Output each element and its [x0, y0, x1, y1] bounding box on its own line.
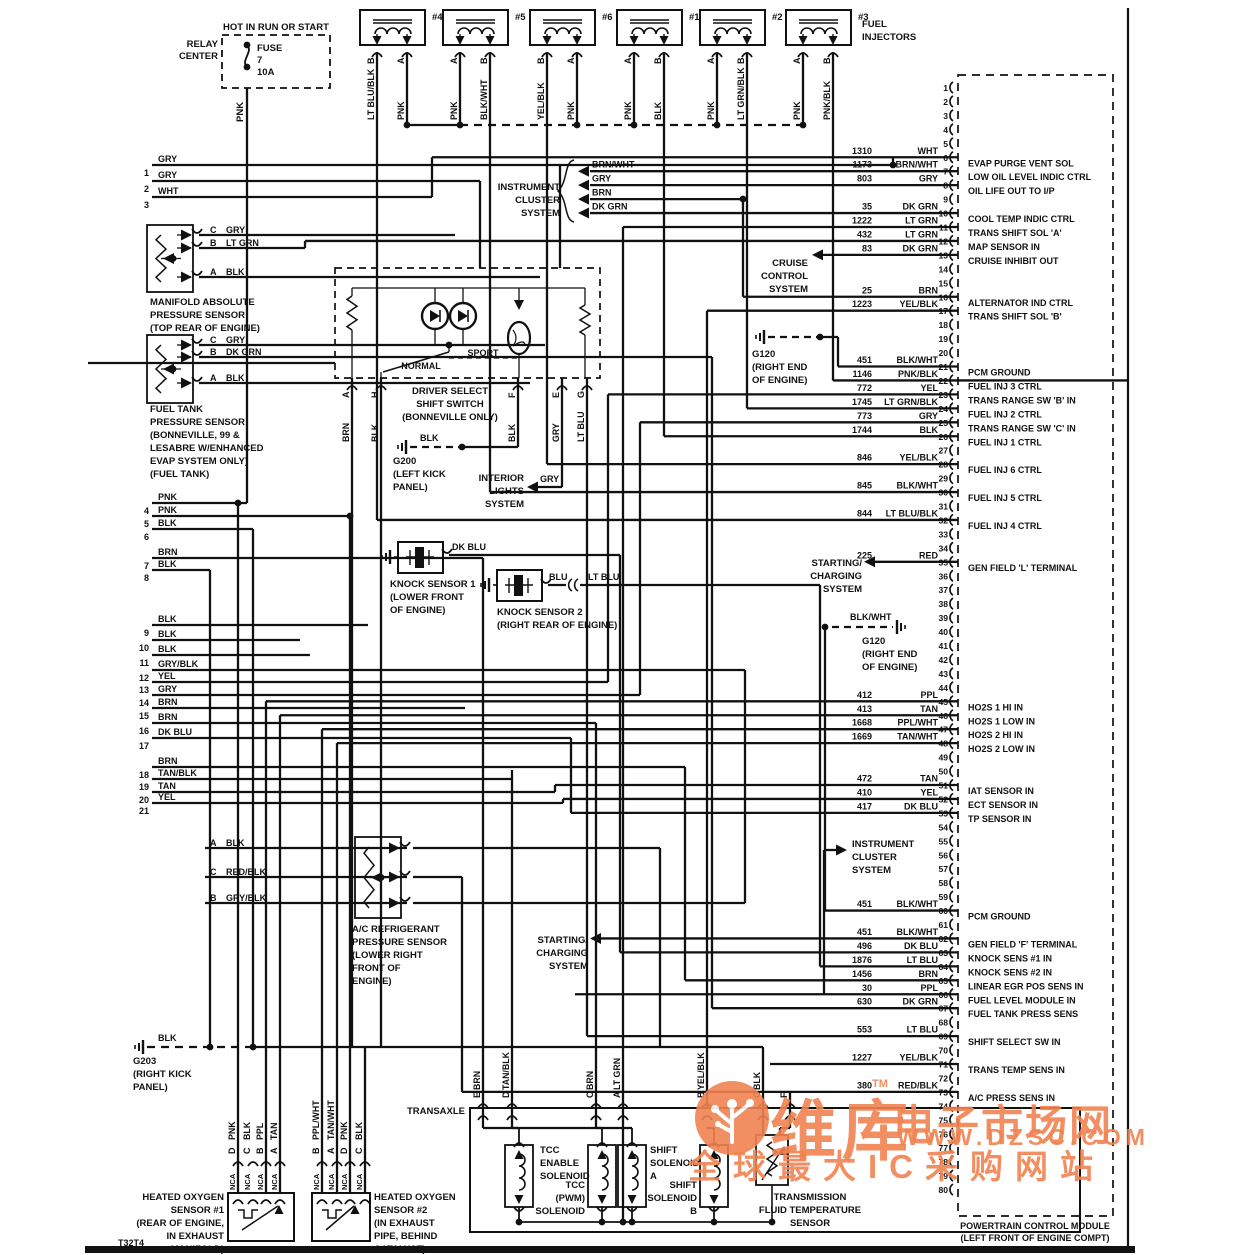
svg-text:A: A — [210, 267, 217, 277]
svg-text:846: 846 — [857, 453, 872, 463]
svg-text:PRESSURE SENSOR: PRESSURE SENSOR — [352, 937, 447, 948]
svg-text:PNK/BLK: PNK/BLK — [822, 80, 832, 120]
svg-text:BRN: BRN — [919, 969, 939, 979]
svg-text:TAN: TAN — [920, 704, 938, 714]
svg-text:INJECTORS: INJECTORS — [862, 32, 916, 43]
svg-text:TAN: TAN — [158, 781, 176, 791]
svg-text:FRONT OF: FRONT OF — [352, 963, 401, 974]
svg-text:YEL: YEL — [158, 792, 176, 802]
svg-text:OF ENGINE): OF ENGINE) — [390, 605, 445, 616]
svg-text:NCA: NCA — [340, 1173, 349, 1190]
svg-text:B: B — [311, 1147, 321, 1154]
svg-text:1223: 1223 — [852, 299, 872, 309]
svg-text:(BONNEVILLE, 99 &: (BONNEVILLE, 99 & — [150, 430, 240, 441]
svg-text:BLK: BLK — [370, 423, 380, 442]
svg-text:BRN: BRN — [341, 423, 351, 442]
svg-text:21: 21 — [139, 806, 149, 816]
svg-text:9: 9 — [144, 628, 149, 638]
svg-text:16: 16 — [139, 726, 149, 736]
svg-text:PNK: PNK — [623, 101, 633, 120]
svg-text:INSTRUMENT: INSTRUMENT — [852, 839, 914, 850]
svg-text:55: 55 — [938, 836, 948, 846]
svg-text:6: 6 — [144, 532, 149, 542]
svg-text:TAN/BLK: TAN/BLK — [158, 768, 197, 778]
svg-text:#5: #5 — [515, 12, 526, 23]
wiring-diagram-page: 1234567891011121314151617181920212223242… — [0, 0, 1242, 1255]
svg-text:HO2S 1 HI IN: HO2S 1 HI IN — [968, 702, 1023, 712]
svg-text:(LOWER RIGHT: (LOWER RIGHT — [352, 950, 423, 961]
svg-text:FUEL INJ 2 CTRL: FUEL INJ 2 CTRL — [968, 409, 1042, 419]
svg-text:LOW OIL LEVEL INDIC CTRL: LOW OIL LEVEL INDIC CTRL — [968, 172, 1092, 182]
svg-text:4: 4 — [144, 506, 149, 516]
svg-text:LIGHTS: LIGHTS — [489, 486, 524, 497]
dzsc-watermark-logo-icon — [694, 1080, 770, 1156]
svg-text:BRN: BRN — [158, 712, 178, 722]
svg-text:A: A — [623, 57, 633, 64]
svg-text:PNK: PNK — [339, 1121, 349, 1140]
svg-text:YEL/BLK: YEL/BLK — [899, 299, 938, 309]
svg-text:EVAP SYSTEM ONLY): EVAP SYSTEM ONLY) — [150, 456, 248, 467]
svg-text:GRY: GRY — [919, 174, 938, 184]
svg-text:C: C — [210, 335, 217, 345]
svg-text:FUEL: FUEL — [862, 19, 887, 30]
svg-text:HO2S 1 LOW IN: HO2S 1 LOW IN — [968, 716, 1035, 726]
svg-text:A/C PRESS SENS IN: A/C PRESS SENS IN — [968, 1093, 1055, 1103]
svg-text:CLUSTER: CLUSTER — [852, 852, 897, 863]
svg-text:F: F — [507, 392, 517, 398]
svg-text:29: 29 — [938, 474, 948, 484]
svg-text:BLK: BLK — [158, 518, 177, 528]
svg-text:HOT IN RUN OR START: HOT IN RUN OR START — [223, 22, 329, 33]
svg-text:#1: #1 — [689, 12, 700, 23]
svg-text:POWERTRAIN CONTROL MODULE: POWERTRAIN CONTROL MODULE — [960, 1221, 1110, 1231]
svg-text:NCA: NCA — [355, 1173, 364, 1190]
svg-text:BLK: BLK — [226, 267, 245, 277]
svg-text:SHIFT: SHIFT — [670, 1180, 698, 1191]
svg-text:BRN: BRN — [919, 285, 939, 295]
svg-text:PRESSURE SENSOR: PRESSURE SENSOR — [150, 310, 245, 321]
svg-text:D: D — [227, 1147, 237, 1154]
svg-text:A: A — [612, 1091, 622, 1098]
diagram-code: T32T4 — [118, 1238, 144, 1248]
svg-text:ALTERNATOR IND CTRL: ALTERNATOR IND CTRL — [968, 298, 1073, 308]
svg-text:NCA: NCA — [327, 1173, 336, 1190]
svg-text:BLK: BLK — [242, 1121, 252, 1140]
svg-text:1146: 1146 — [852, 369, 872, 379]
svg-text:50: 50 — [938, 767, 948, 777]
svg-text:(PWM): (PWM) — [555, 1193, 585, 1204]
svg-text:STARTING/: STARTING/ — [538, 935, 589, 946]
svg-text:SYSTEM: SYSTEM — [823, 584, 862, 595]
svg-text:20: 20 — [139, 795, 149, 805]
svg-text:B: B — [479, 57, 489, 64]
svg-text:773: 773 — [857, 411, 872, 421]
svg-text:1222: 1222 — [852, 216, 872, 226]
wiring-diagram-canvas: 1234567891011121314151617181920212223242… — [0, 0, 1242, 1255]
svg-text:78: 78 — [938, 1157, 948, 1167]
svg-text:SENSOR #1: SENSOR #1 — [171, 1205, 225, 1216]
svg-text:1: 1 — [144, 168, 149, 178]
svg-text:5: 5 — [943, 139, 948, 149]
svg-text:(LEFT FRONT OF ENGINE COMPT): (LEFT FRONT OF ENGINE COMPT) — [961, 1233, 1110, 1243]
svg-text:DK BLU: DK BLU — [904, 801, 938, 811]
svg-text:79: 79 — [938, 1171, 948, 1181]
svg-text:2: 2 — [943, 97, 948, 107]
svg-text:SENSOR: SENSOR — [790, 1218, 830, 1229]
svg-text:B: B — [366, 57, 376, 64]
svg-text:PCM GROUND: PCM GROUND — [968, 368, 1031, 378]
svg-text:EVAP PURGE VENT SOL: EVAP PURGE VENT SOL — [968, 158, 1074, 168]
svg-text:TAN: TAN — [920, 774, 938, 784]
svg-text:GRY: GRY — [158, 684, 177, 694]
svg-text:CRUISE INHIBIT OUT: CRUISE INHIBIT OUT — [968, 256, 1059, 266]
svg-text:B: B — [210, 347, 217, 357]
svg-text:TAN/BLK: TAN/BLK — [501, 1051, 511, 1090]
svg-text:380: 380 — [857, 1080, 872, 1090]
svg-text:D: D — [501, 1091, 511, 1098]
svg-text:FUEL INJ 3 CTRL: FUEL INJ 3 CTRL — [968, 381, 1042, 391]
svg-text:18: 18 — [938, 320, 948, 330]
svg-text:A: A — [210, 373, 217, 383]
svg-text:PPL/WHT: PPL/WHT — [311, 1100, 321, 1140]
svg-text:9: 9 — [943, 195, 948, 205]
svg-text:C: C — [210, 225, 217, 235]
svg-text:KNOCK SENSOR 1: KNOCK SENSOR 1 — [390, 579, 476, 590]
svg-text:NCA: NCA — [312, 1173, 321, 1190]
svg-text:GRY: GRY — [592, 174, 611, 184]
svg-text:LT GRN: LT GRN — [905, 229, 938, 239]
svg-text:B: B — [653, 57, 663, 64]
svg-text:CONTROL: CONTROL — [761, 271, 808, 282]
svg-text:SPORT: SPORT — [467, 348, 499, 358]
svg-text:(BONNEVILLE ONLY): (BONNEVILLE ONLY) — [402, 412, 498, 423]
svg-text:A: A — [706, 57, 716, 64]
svg-text:BLK: BLK — [226, 838, 245, 848]
svg-text:LT BLU/BLK: LT BLU/BLK — [366, 68, 376, 120]
svg-text:BLK/WHT: BLK/WHT — [850, 612, 892, 622]
svg-text:BRN: BRN — [158, 547, 178, 557]
svg-text:TCC: TCC — [565, 1180, 585, 1191]
svg-text:57: 57 — [938, 864, 948, 874]
svg-text:PNK: PNK — [792, 101, 802, 120]
svg-text:PANEL): PANEL) — [133, 1082, 168, 1093]
svg-text:1744: 1744 — [852, 425, 872, 435]
svg-text:PNK: PNK — [566, 101, 576, 120]
svg-text:A/C REFRIGERANT: A/C REFRIGERANT — [352, 924, 440, 935]
svg-text:59: 59 — [938, 892, 948, 902]
svg-text:BRN/WHT: BRN/WHT — [592, 160, 635, 170]
svg-text:FUEL INJ 4 CTRL: FUEL INJ 4 CTRL — [968, 521, 1042, 531]
svg-text:(LOWER FRONT: (LOWER FRONT — [390, 592, 464, 603]
svg-text:F: F — [779, 1092, 789, 1098]
svg-text:LESABRE W/ENHANCED: LESABRE W/ENHANCED — [150, 443, 264, 454]
svg-text:1876: 1876 — [852, 955, 872, 965]
svg-text:E: E — [551, 392, 561, 398]
svg-text:ENGINE): ENGINE) — [352, 976, 392, 987]
svg-text:SENSOR #2: SENSOR #2 — [374, 1205, 427, 1216]
svg-text:BLK: BLK — [507, 423, 517, 442]
svg-text:TAN: TAN — [269, 1123, 279, 1140]
svg-text:PNK: PNK — [158, 492, 178, 502]
svg-text:451: 451 — [857, 927, 872, 937]
svg-text:MAP SENSOR IN: MAP SENSOR IN — [968, 242, 1040, 252]
svg-text:NCA: NCA — [270, 1173, 279, 1190]
svg-text:BLK/WHT: BLK/WHT — [897, 355, 939, 365]
svg-text:BLK: BLK — [226, 373, 245, 383]
svg-text:14: 14 — [938, 264, 948, 274]
svg-text:BLK: BLK — [158, 559, 177, 569]
svg-text:TRANSMISSION: TRANSMISSION — [774, 1192, 847, 1203]
svg-text:19: 19 — [938, 334, 948, 344]
svg-text:553: 553 — [857, 1025, 872, 1035]
svg-text:58: 58 — [938, 878, 948, 888]
svg-text:G120: G120 — [752, 349, 775, 360]
svg-text:DK BLU: DK BLU — [158, 727, 192, 737]
svg-text:61: 61 — [938, 920, 948, 930]
svg-text:72: 72 — [938, 1073, 948, 1083]
svg-text:A: A — [650, 1171, 657, 1182]
svg-text:C: C — [210, 867, 217, 877]
svg-text:49: 49 — [938, 753, 948, 763]
svg-text:42: 42 — [938, 655, 948, 665]
svg-text:D: D — [339, 1147, 349, 1154]
svg-text:LT GRN: LT GRN — [226, 238, 259, 248]
svg-text:PNK/BLK: PNK/BLK — [898, 369, 938, 379]
svg-text:PPL: PPL — [920, 983, 938, 993]
svg-text:DK BLU: DK BLU — [452, 542, 486, 552]
svg-text:76: 76 — [938, 1129, 948, 1139]
svg-text:BLK/WHT: BLK/WHT — [897, 481, 939, 491]
svg-text:SOLENOID: SOLENOID — [650, 1158, 700, 1169]
svg-text:54: 54 — [938, 822, 948, 832]
svg-text:15: 15 — [139, 711, 149, 721]
svg-text:35: 35 — [862, 202, 872, 212]
svg-text:(LEFT KICK: (LEFT KICK — [393, 469, 446, 480]
svg-text:NCA: NCA — [256, 1173, 265, 1190]
svg-text:G120: G120 — [862, 636, 885, 647]
svg-text:630: 630 — [857, 997, 872, 1007]
svg-text:412: 412 — [857, 690, 872, 700]
svg-text:(TOP REAR OF ENGINE): (TOP REAR OF ENGINE) — [150, 323, 260, 334]
svg-text:PNK: PNK — [396, 101, 406, 120]
svg-text:BLK: BLK — [158, 614, 177, 624]
svg-text:41: 41 — [938, 641, 948, 651]
svg-text:844: 844 — [857, 508, 872, 518]
svg-text:#4: #4 — [432, 12, 443, 23]
svg-text:7: 7 — [144, 561, 149, 571]
svg-text:SYSTEM: SYSTEM — [521, 208, 560, 219]
svg-text:1669: 1669 — [852, 732, 872, 742]
svg-text:845: 845 — [857, 481, 872, 491]
svg-text:BLK: BLK — [653, 101, 663, 120]
svg-text:INTERIOR: INTERIOR — [479, 473, 525, 484]
svg-text:BLK: BLK — [158, 1033, 177, 1043]
svg-text:E: E — [472, 1092, 482, 1098]
svg-text:DK BLU: DK BLU — [904, 941, 938, 951]
svg-text:43: 43 — [938, 669, 948, 679]
svg-text:B: B — [690, 1206, 697, 1217]
svg-text:LT BLU: LT BLU — [588, 572, 619, 582]
svg-text:(IN EXHAUST: (IN EXHAUST — [374, 1218, 435, 1229]
svg-text:12: 12 — [139, 673, 149, 683]
svg-text:TP SENSOR IN: TP SENSOR IN — [968, 814, 1031, 824]
svg-text:YEL/BLK: YEL/BLK — [536, 82, 546, 120]
svg-text:FUEL LEVEL MODULE IN: FUEL LEVEL MODULE IN — [968, 995, 1076, 1005]
svg-text:SYSTEM: SYSTEM — [549, 961, 588, 972]
svg-text:BLK: BLK — [420, 433, 439, 443]
svg-text:SOLENOID: SOLENOID — [535, 1206, 585, 1217]
driver-select-shift-switch: NORMALSPORTABRNHBLKFBLKEGRYGLT BLUDRIVER… — [335, 268, 600, 442]
svg-text:CHARGING: CHARGING — [810, 571, 862, 582]
svg-text:27: 27 — [938, 446, 948, 456]
svg-text:NCA: NCA — [228, 1173, 237, 1190]
svg-text:40: 40 — [938, 627, 948, 637]
svg-text:C: C — [354, 1147, 364, 1154]
pcm-connector: 1234567891011121314151617181920212223242… — [266, 75, 1113, 1243]
svg-text:4: 4 — [943, 125, 948, 135]
svg-text:PPL: PPL — [255, 1122, 265, 1140]
svg-text:TRANS SHIFT SOL 'B': TRANS SHIFT SOL 'B' — [968, 312, 1062, 322]
svg-text:LT BLU: LT BLU — [907, 1025, 938, 1035]
svg-text:CENTER: CENTER — [179, 51, 218, 62]
svg-text:A: A — [792, 57, 802, 64]
svg-text:A: A — [210, 838, 217, 848]
svg-text:OF ENGINE): OF ENGINE) — [862, 662, 917, 673]
svg-text:RELAY: RELAY — [187, 39, 219, 50]
svg-text:C: C — [585, 1091, 595, 1098]
svg-text:RED: RED — [919, 550, 939, 560]
svg-text:DRIVER SELECT: DRIVER SELECT — [412, 386, 488, 397]
svg-text:RED/BLK: RED/BLK — [226, 867, 266, 877]
svg-text:TCC: TCC — [540, 1145, 560, 1156]
svg-text:PNK: PNK — [706, 101, 716, 120]
svg-text:8: 8 — [144, 573, 149, 583]
svg-text:SYSTEM: SYSTEM — [769, 284, 808, 295]
svg-text:BLK/WHT: BLK/WHT — [897, 899, 939, 909]
svg-text:10A: 10A — [257, 67, 275, 78]
svg-text:83: 83 — [862, 243, 872, 253]
svg-text:432: 432 — [857, 229, 872, 239]
svg-text:70: 70 — [938, 1046, 948, 1056]
svg-text:803: 803 — [857, 174, 872, 184]
svg-text:GRY: GRY — [158, 170, 177, 180]
svg-text:COOL TEMP INDIC CTRL: COOL TEMP INDIC CTRL — [968, 214, 1075, 224]
svg-text:BLK: BLK — [920, 425, 939, 435]
svg-text:BRN: BRN — [472, 1071, 482, 1090]
svg-text:417: 417 — [857, 801, 872, 811]
svg-text:HEATED OXYGEN: HEATED OXYGEN — [142, 1192, 224, 1203]
svg-text:OIL LIFE OUT TO I/P: OIL LIFE OUT TO I/P — [968, 186, 1055, 196]
svg-text:TRANS RANGE SW 'C' IN: TRANS RANGE SW 'C' IN — [968, 423, 1076, 433]
svg-text:BRN: BRN — [158, 697, 178, 707]
svg-text:13: 13 — [139, 685, 149, 695]
svg-text:451: 451 — [857, 899, 872, 909]
svg-text:3: 3 — [144, 200, 149, 210]
svg-text:PANEL): PANEL) — [393, 482, 428, 493]
svg-text:DK GRN: DK GRN — [592, 202, 628, 212]
svg-text:NCA: NCA — [243, 1173, 252, 1190]
svg-text:MANIFOLD ABSOLUTE: MANIFOLD ABSOLUTE — [150, 297, 255, 308]
svg-text:413: 413 — [857, 704, 872, 714]
svg-text:1227: 1227 — [852, 1053, 872, 1063]
svg-text:A: A — [341, 391, 351, 398]
svg-text:DK GRN: DK GRN — [903, 243, 939, 253]
svg-text:BLK/WHT: BLK/WHT — [479, 79, 489, 120]
svg-text:LT BLU/BLK: LT BLU/BLK — [886, 508, 939, 518]
svg-text:7: 7 — [257, 55, 262, 66]
svg-text:18: 18 — [139, 770, 149, 780]
svg-text:(RIGHT END: (RIGHT END — [752, 362, 808, 373]
svg-text:3: 3 — [943, 111, 948, 121]
svg-text:(RIGHT REAR OF ENGINE): (RIGHT REAR OF ENGINE) — [497, 620, 617, 631]
svg-text:PCM GROUND: PCM GROUND — [968, 912, 1031, 922]
svg-text:19: 19 — [139, 782, 149, 792]
svg-text:CRUISE: CRUISE — [772, 258, 808, 269]
svg-text:G203: G203 — [133, 1056, 156, 1067]
svg-text:SYSTEM: SYSTEM — [485, 499, 524, 510]
svg-text:772: 772 — [857, 383, 872, 393]
svg-text:A: A — [269, 1147, 279, 1154]
svg-text:80: 80 — [938, 1185, 948, 1195]
svg-text:496: 496 — [857, 941, 872, 951]
svg-text:GRY/BLK: GRY/BLK — [158, 659, 199, 669]
svg-text:410: 410 — [857, 787, 872, 797]
svg-text:YEL: YEL — [158, 671, 176, 681]
svg-text:STARTING/: STARTING/ — [812, 558, 863, 569]
svg-text:BRN: BRN — [592, 188, 612, 198]
svg-text:LT BLU: LT BLU — [576, 411, 586, 442]
svg-text:14: 14 — [139, 698, 149, 708]
svg-text:39: 39 — [938, 613, 948, 623]
svg-text:WHT: WHT — [918, 146, 939, 156]
svg-text:GRY: GRY — [540, 474, 559, 484]
svg-text:BRN: BRN — [158, 756, 178, 766]
svg-text:ENABLE: ENABLE — [540, 1158, 579, 1169]
svg-text:YEL/BLK: YEL/BLK — [899, 453, 938, 463]
svg-text:BLK: BLK — [354, 1121, 364, 1140]
svg-text:DK GRN: DK GRN — [903, 997, 939, 1007]
svg-text:FUSE: FUSE — [257, 43, 282, 54]
svg-text:LT BLU: LT BLU — [907, 955, 938, 965]
svg-text:KNOCK SENSOR 2: KNOCK SENSOR 2 — [497, 607, 583, 618]
svg-text:1745: 1745 — [852, 397, 872, 407]
svg-text:ECT SENSOR IN: ECT SENSOR IN — [968, 800, 1038, 810]
svg-text:BLK: BLK — [158, 629, 177, 639]
svg-text:SHIFT SWITCH: SHIFT SWITCH — [416, 399, 484, 410]
svg-text:G200: G200 — [393, 456, 416, 467]
svg-text:FUEL INJ 5 CTRL: FUEL INJ 5 CTRL — [968, 493, 1042, 503]
svg-text:GRY: GRY — [226, 335, 245, 345]
svg-text:WHT: WHT — [158, 186, 179, 196]
svg-text:CHARGING: CHARGING — [536, 948, 588, 959]
svg-text:PIPE, BEHIND: PIPE, BEHIND — [374, 1231, 437, 1242]
svg-text:GEN FIELD 'F' TERMINAL: GEN FIELD 'F' TERMINAL — [968, 939, 1078, 949]
svg-text:1456: 1456 — [852, 969, 872, 979]
svg-text:1310: 1310 — [852, 146, 872, 156]
svg-text:KNOCK SENS #1 IN: KNOCK SENS #1 IN — [968, 953, 1052, 963]
svg-text:PNK: PNK — [227, 1121, 237, 1140]
svg-text:(RIGHT KICK: (RIGHT KICK — [133, 1069, 192, 1080]
svg-text:34: 34 — [938, 543, 948, 553]
svg-text:472: 472 — [857, 774, 872, 784]
svg-text:TAN/WHT: TAN/WHT — [897, 732, 938, 742]
relay-center: HOT IN RUN OR STARTRELAYCENTERFUSE710APN… — [179, 22, 330, 122]
svg-text:TRANSAXLE: TRANSAXLE — [407, 1106, 465, 1117]
svg-text:HO2S 2 HI IN: HO2S 2 HI IN — [968, 730, 1023, 740]
svg-text:17: 17 — [139, 741, 149, 751]
svg-text:YEL/BLK: YEL/BLK — [899, 1053, 938, 1063]
svg-text:A: A — [326, 1147, 336, 1154]
